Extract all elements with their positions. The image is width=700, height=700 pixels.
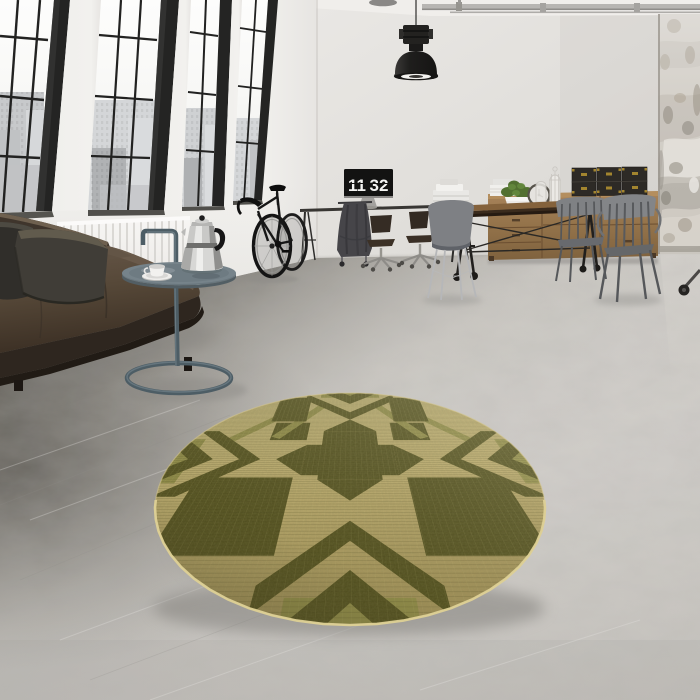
svg-text:11: 11 <box>348 176 366 195</box>
svg-text:32: 32 <box>370 176 389 195</box>
